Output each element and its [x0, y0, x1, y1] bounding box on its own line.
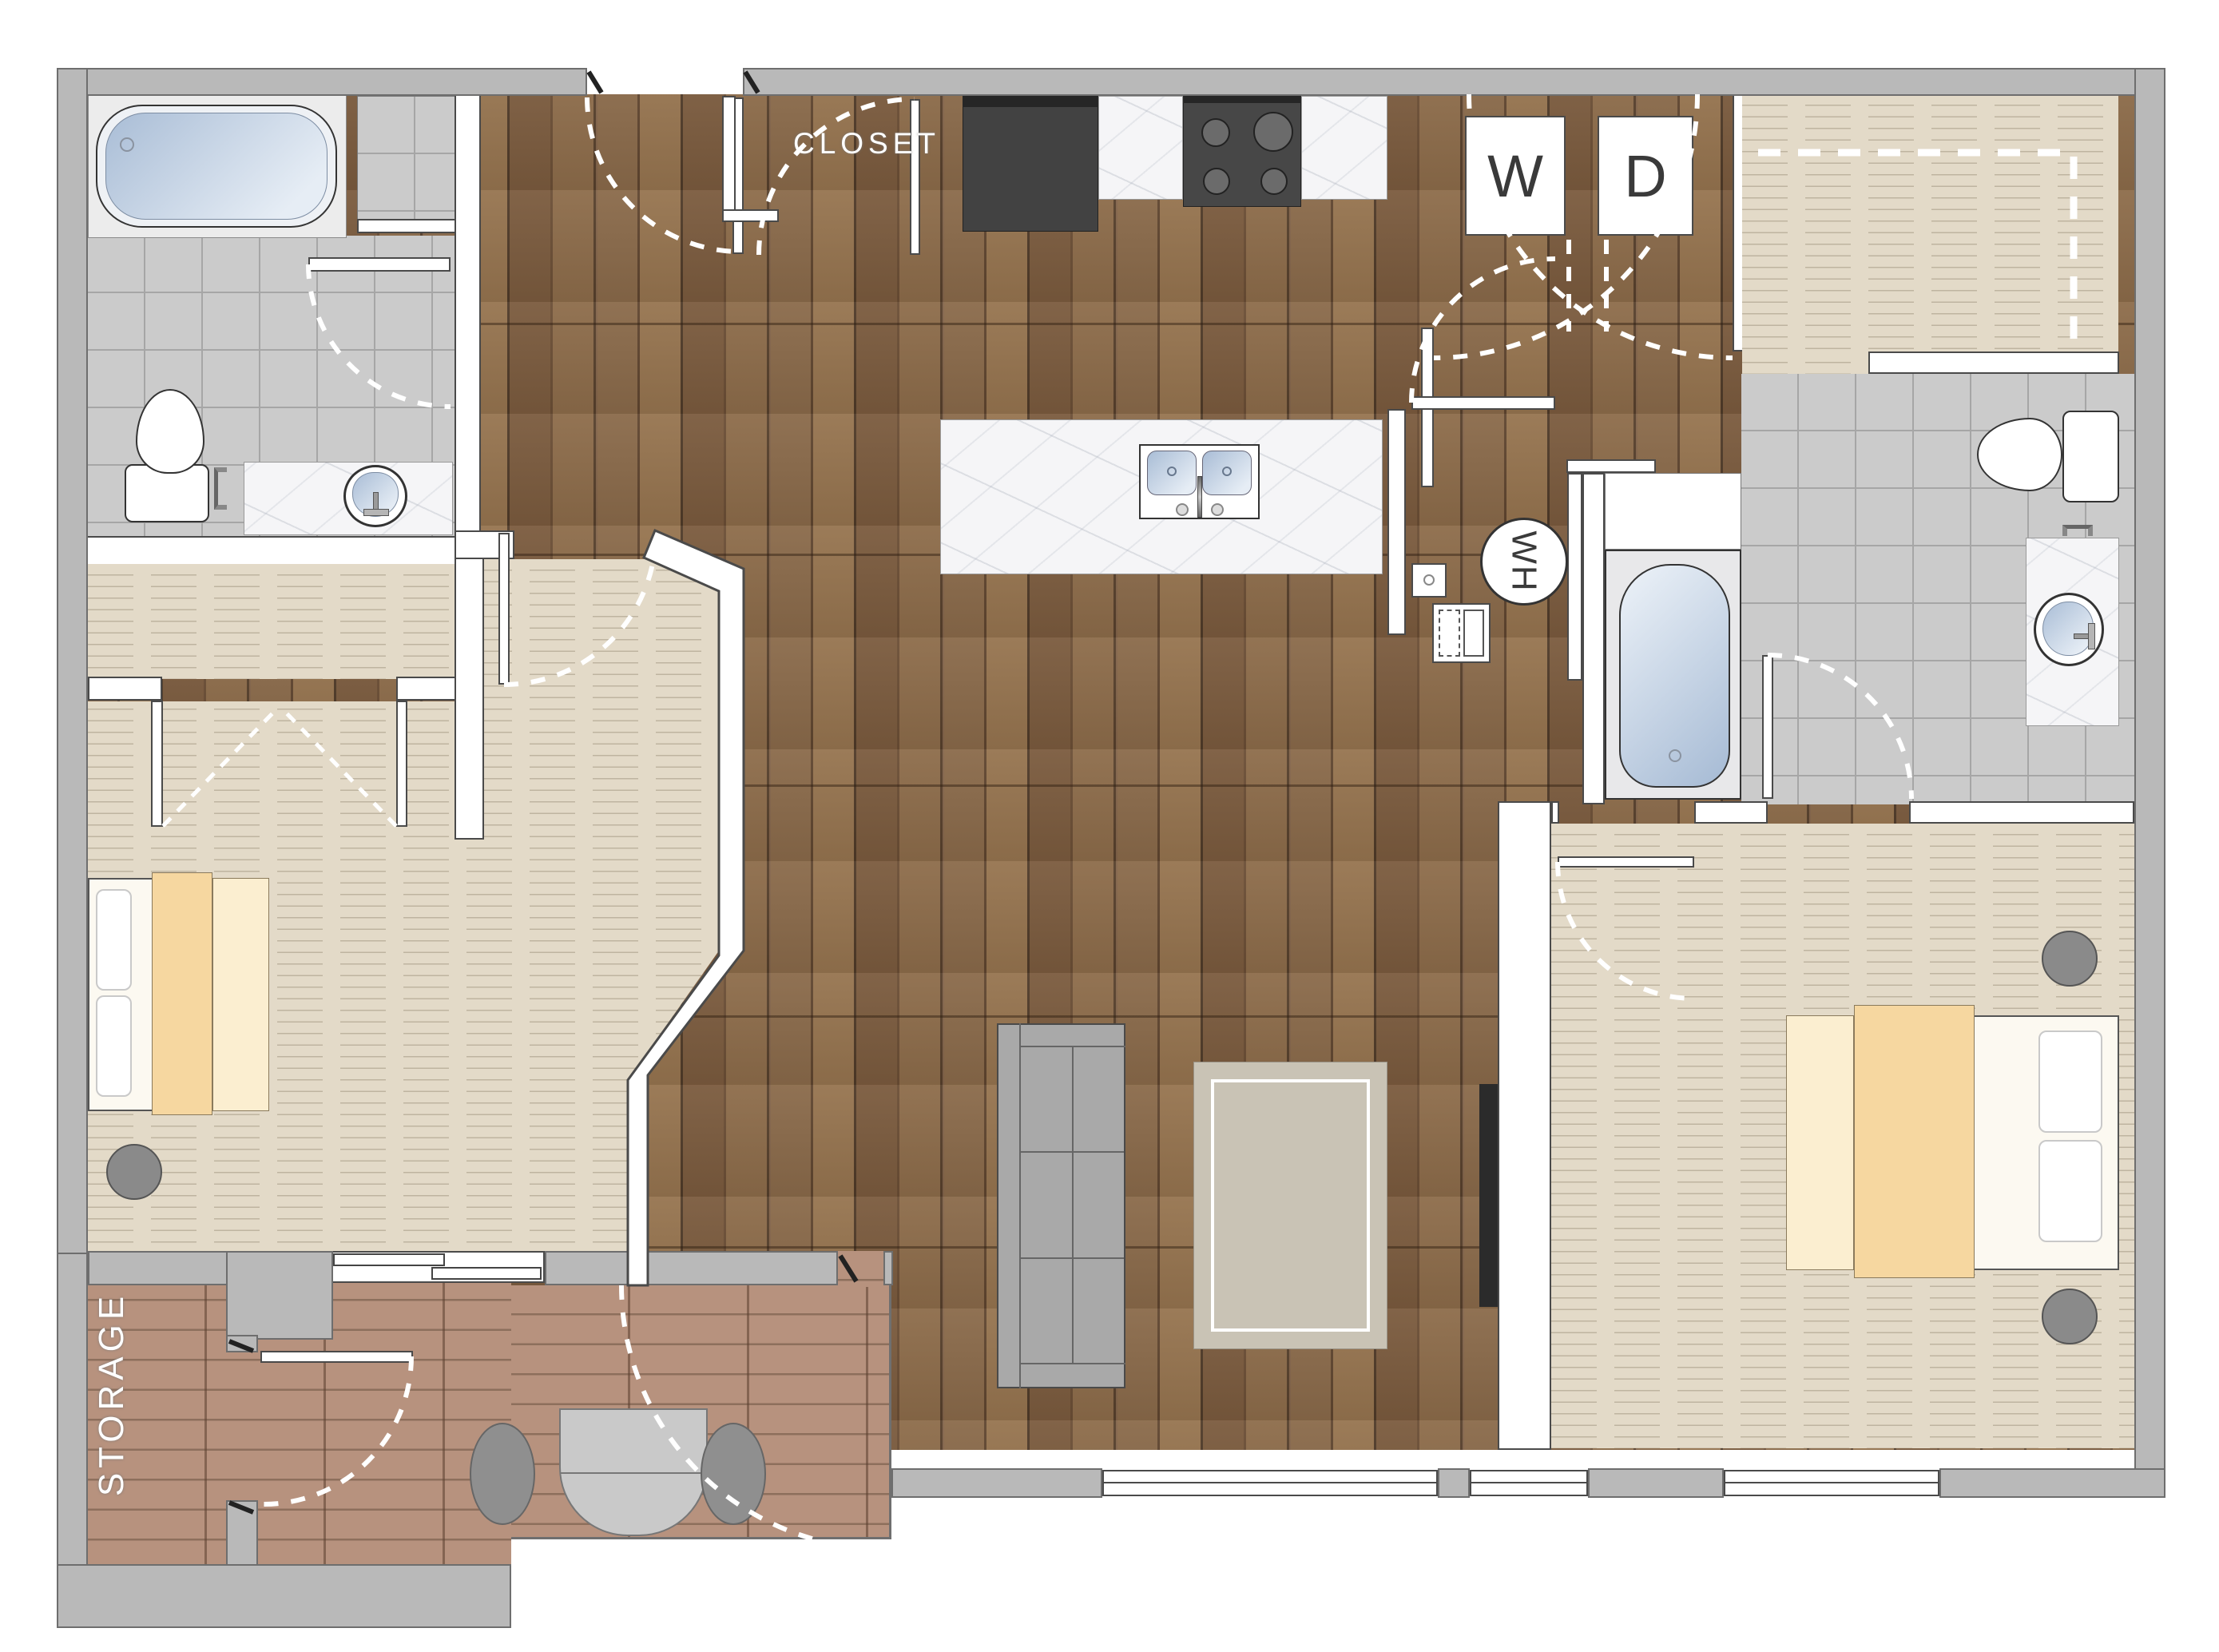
bifold-dash-left — [163, 709, 276, 826]
storage-door-arc — [264, 1356, 411, 1504]
entry-door-arc — [587, 97, 738, 252]
bathroom2-door-arc — [1768, 655, 1911, 799]
bedroom2-door-arc — [1558, 862, 1694, 999]
hall-closet-door-arc — [759, 99, 915, 255]
door-jamb-hatches — [229, 72, 856, 1512]
bifold-fold-dashes — [163, 709, 396, 826]
bathroom1-door-arc — [308, 264, 451, 407]
annotation-overlay — [0, 0, 2219, 1652]
floor-plan: CLOSET W D WH — [0, 0, 2219, 1652]
door-swing-arcs — [264, 94, 1911, 1549]
bedroom1-door-arc — [504, 533, 656, 685]
patio-door-arc — [621, 1285, 885, 1549]
laundry-door-arc — [1411, 259, 1555, 403]
closet2-rod-dashes — [1758, 153, 2074, 340]
bifold-dash-right — [283, 709, 396, 826]
bedroom1-diagonal-wall — [628, 530, 744, 1285]
